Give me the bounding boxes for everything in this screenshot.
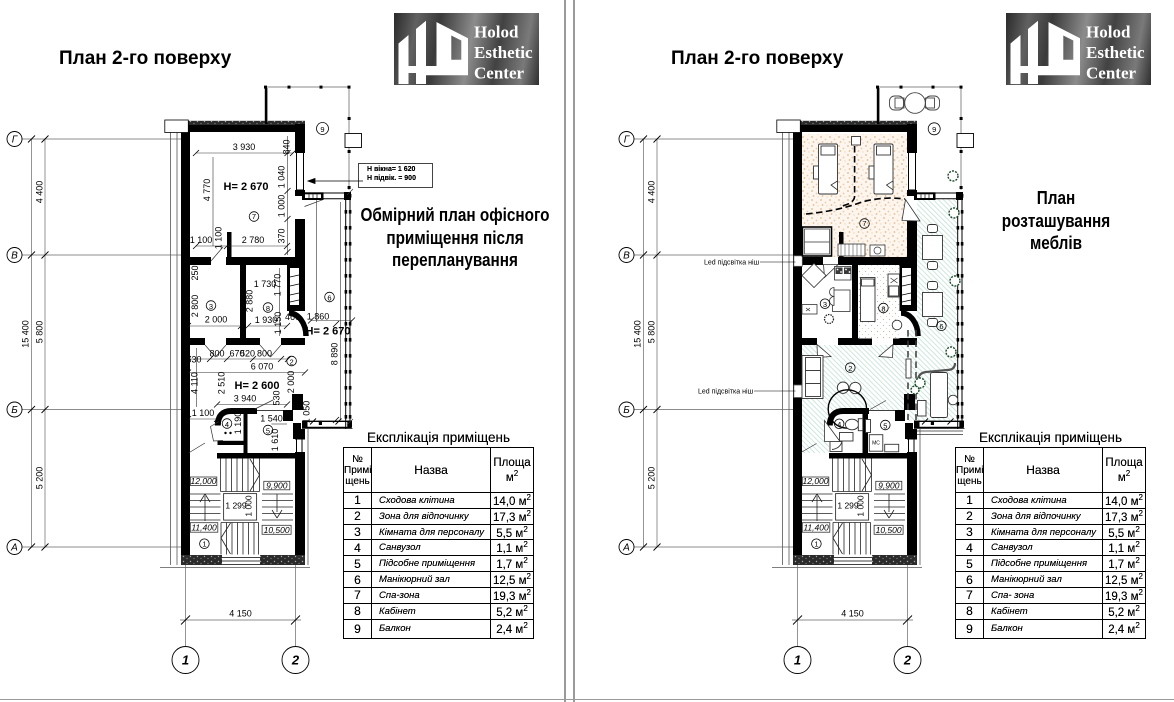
- svg-text:3: 3: [209, 302, 213, 311]
- svg-text:1 050: 1 050: [302, 401, 312, 424]
- svg-text:2: 2: [290, 357, 294, 366]
- svg-text:Led підсвітка ніш: Led підсвітка ніш: [698, 388, 754, 396]
- svg-text:3: 3: [823, 300, 827, 309]
- svg-text:2 780: 2 780: [242, 235, 265, 245]
- svg-text:6: 6: [327, 293, 331, 302]
- svg-text:800: 800: [257, 349, 272, 359]
- svg-text:520: 520: [240, 349, 255, 359]
- svg-text:370: 370: [277, 228, 287, 243]
- svg-text:2 000: 2 000: [205, 315, 228, 325]
- svg-text:2 880: 2 880: [245, 290, 255, 313]
- svg-text:4 770: 4 770: [202, 179, 212, 202]
- svg-text:4: 4: [225, 420, 229, 429]
- svg-text:6 070: 6 070: [251, 362, 274, 372]
- svg-text:7: 7: [862, 219, 866, 228]
- svg-text:8 890: 8 890: [330, 343, 340, 366]
- svg-text:3 940: 3 940: [234, 394, 257, 404]
- svg-text:1 100: 1 100: [190, 235, 213, 245]
- svg-text:1 000: 1 000: [277, 195, 287, 218]
- svg-text:8: 8: [266, 304, 270, 313]
- svg-text:2 000: 2 000: [286, 371, 296, 394]
- svg-text:1 770: 1 770: [273, 274, 283, 297]
- svg-text:3 930: 3 930: [233, 142, 256, 152]
- svg-text:5: 5: [883, 421, 887, 430]
- svg-text:530: 530: [272, 390, 282, 405]
- svg-text:1 190: 1 190: [233, 412, 243, 435]
- svg-text:1 040: 1 040: [277, 166, 287, 189]
- svg-text:1 540: 1 540: [260, 414, 283, 424]
- svg-text:2 800: 2 800: [190, 295, 200, 318]
- svg-text:250: 250: [190, 265, 200, 280]
- svg-text:9: 9: [320, 125, 324, 134]
- svg-text:1 150: 1 150: [273, 312, 283, 335]
- svg-text:H= 2 670: H= 2 670: [224, 181, 269, 193]
- svg-text:9: 9: [932, 125, 936, 134]
- svg-text:630: 630: [186, 355, 201, 365]
- svg-text:2: 2: [848, 364, 852, 373]
- svg-text:1 860: 1 860: [307, 312, 330, 322]
- svg-text:840: 840: [282, 139, 292, 154]
- svg-text:6: 6: [939, 322, 943, 331]
- svg-text:4 110: 4 110: [190, 372, 200, 394]
- svg-text:5: 5: [266, 426, 270, 435]
- svg-text:МС: МС: [872, 441, 880, 447]
- svg-text:H= 2 670: H= 2 670: [306, 326, 351, 338]
- svg-text:460: 460: [285, 312, 300, 322]
- svg-text:1 100: 1 100: [214, 227, 224, 250]
- svg-text:H= 2 600: H= 2 600: [235, 380, 280, 392]
- svg-text:1 100: 1 100: [192, 408, 215, 418]
- svg-text:7: 7: [252, 212, 256, 221]
- svg-text:2 510: 2 510: [217, 372, 227, 395]
- svg-text:8: 8: [881, 304, 885, 313]
- svg-text:1 610: 1 610: [270, 429, 280, 452]
- svg-text:Led підсвітка ніш: Led підсвітка ніш: [704, 259, 760, 267]
- svg-text:4: 4: [837, 420, 841, 429]
